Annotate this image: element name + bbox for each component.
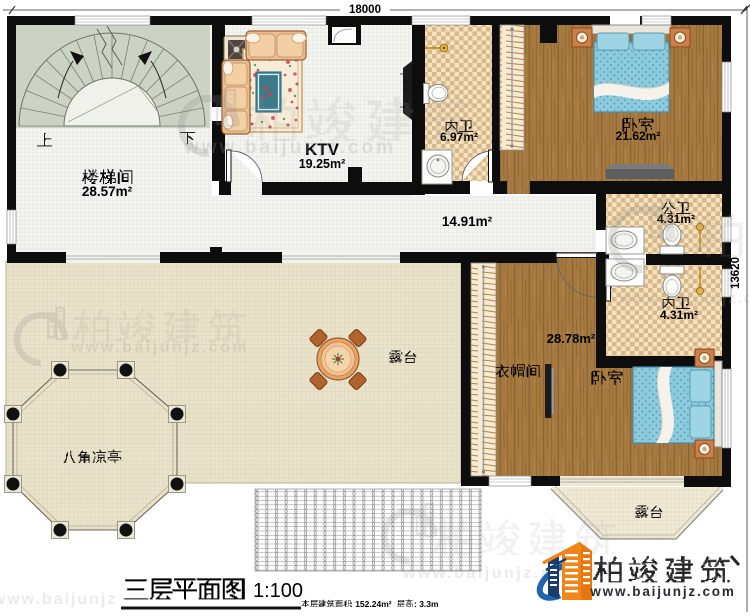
- svg-text:: 152.24m²: : 152.24m²: [350, 599, 392, 609]
- svg-text:28.57m²: 28.57m²: [82, 184, 133, 199]
- svg-text:28.78m²: 28.78m²: [547, 331, 596, 346]
- svg-text:14.91m²: 14.91m²: [442, 214, 493, 229]
- svg-text:21.62m²: 21.62m²: [616, 129, 661, 143]
- svg-text:www.baijunjz.com: www.baijunjz.com: [70, 339, 249, 356]
- svg-text:www.baijunjz.com: www.baijunjz.com: [589, 584, 735, 599]
- svg-text:18000: 18000: [349, 4, 381, 16]
- svg-text:13620: 13620: [730, 257, 742, 289]
- svg-text:: 3.3m: : 3.3m: [414, 599, 439, 609]
- svg-text:4.31m²: 4.31m²: [660, 308, 698, 322]
- svg-text:19.25m²: 19.25m²: [299, 157, 346, 171]
- svg-text:www.baijunjz.com: www.baijunjz.com: [183, 137, 396, 158]
- svg-text:www.baijunjz.com: www.baijunjz.com: [618, 290, 750, 307]
- svg-text:1:100: 1:100: [253, 580, 303, 602]
- svg-text:www.baijunjz: www.baijunjz: [0, 591, 117, 608]
